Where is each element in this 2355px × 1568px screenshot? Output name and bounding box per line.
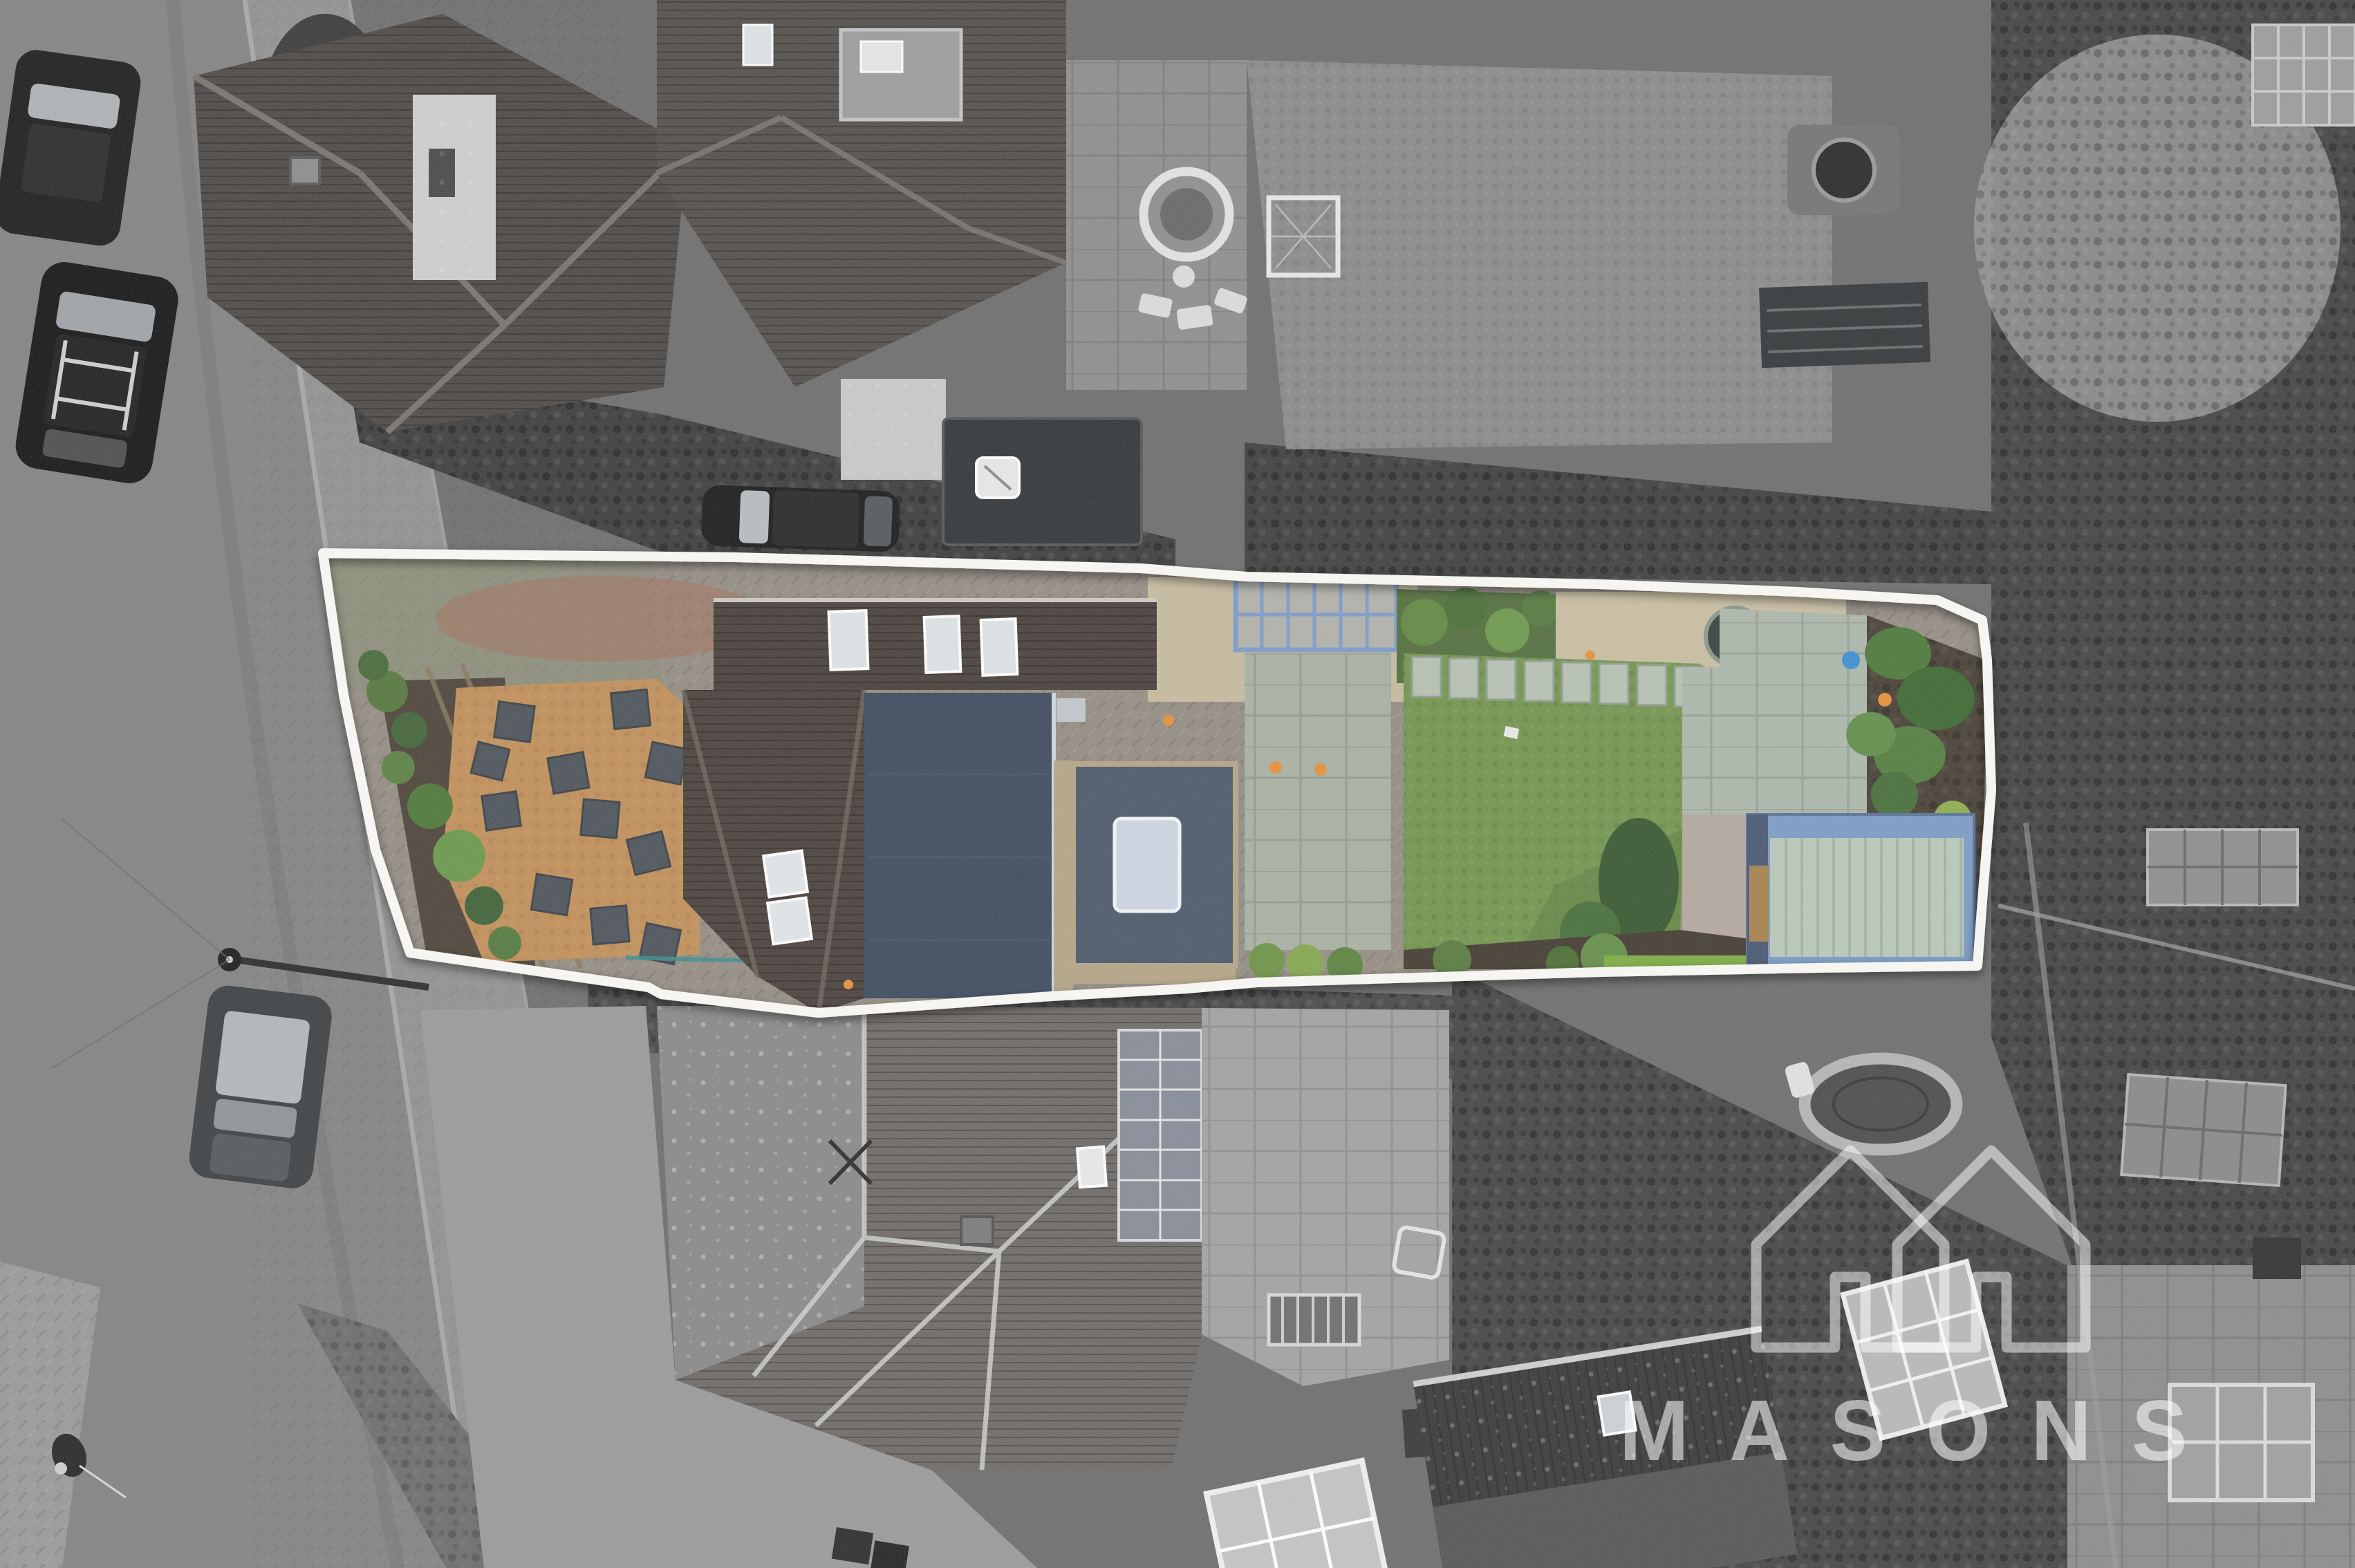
masons-wordmark: MASONS: [1619, 1383, 2228, 1478]
aerial-drone-photo: MASONS: [0, 0, 2355, 1568]
aerial-photo-stage: MASONS: [0, 0, 2355, 1568]
